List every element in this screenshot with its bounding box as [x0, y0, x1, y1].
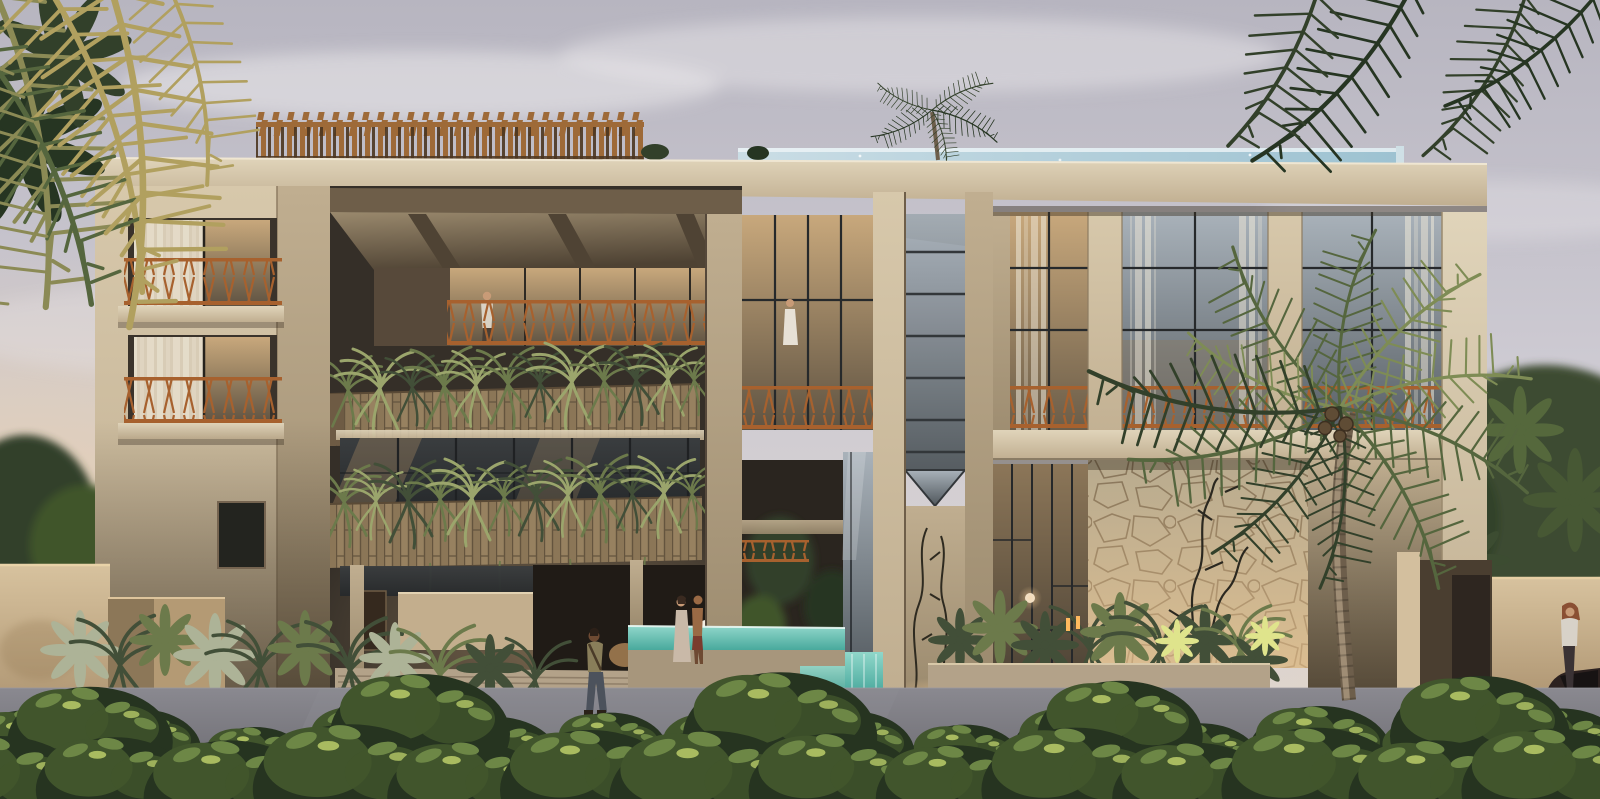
column	[630, 560, 643, 632]
balcony-railing	[124, 379, 282, 423]
fin	[1088, 212, 1122, 460]
tower-fin-left	[873, 192, 905, 700]
rooftop-pergola	[256, 112, 644, 165]
upper-walkway-railing	[447, 300, 742, 345]
small-window	[218, 502, 265, 568]
bollard-light	[1066, 618, 1070, 631]
fin	[993, 212, 1010, 460]
lit-leaf	[1245, 616, 1285, 656]
bollard-light	[1076, 616, 1080, 629]
balcony-railing	[742, 388, 873, 428]
lit-leaf	[1155, 619, 1199, 663]
tree-leaf	[1476, 386, 1564, 474]
architectural-rendering	[0, 0, 1600, 799]
